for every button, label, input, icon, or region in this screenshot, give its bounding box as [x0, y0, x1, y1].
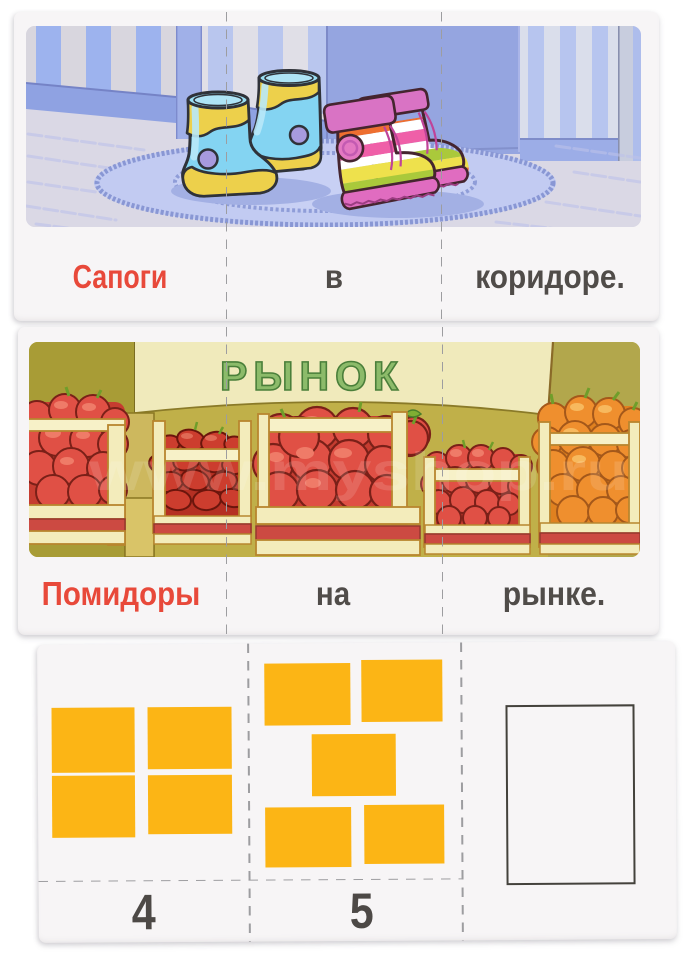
- svg-text:www.myshop.ru: www.myshop.ru: [88, 442, 629, 502]
- svg-text:РЫНОК: РЫНОК: [220, 353, 404, 399]
